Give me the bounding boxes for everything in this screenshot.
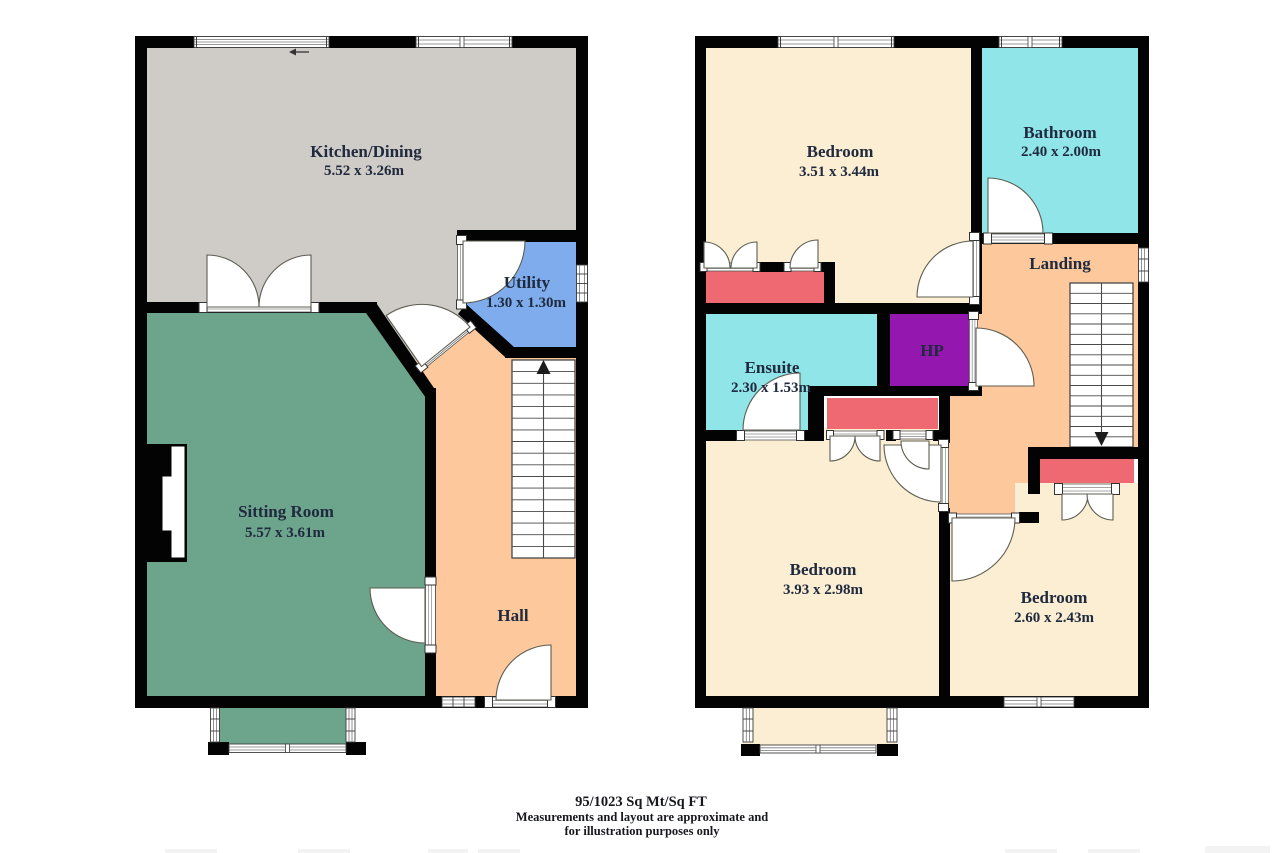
svg-text:Kitchen/Dining: Kitchen/Dining [310,142,422,161]
svg-text:2.60 x 2.43m: 2.60 x 2.43m [1014,610,1095,626]
svg-text:Sitting Room: Sitting Room [238,502,334,521]
svg-text:95/1023 Sq Mt/Sq FT: 95/1023 Sq Mt/Sq FT [575,794,707,810]
svg-text:5.52 x 3.26m: 5.52 x 3.26m [324,163,405,179]
svg-text:Bathroom: Bathroom [1023,123,1096,142]
svg-text:Bedroom: Bedroom [1021,588,1088,607]
svg-text:3.51 x 3.44m: 3.51 x 3.44m [799,164,880,180]
svg-text:Measurements and layout are ap: Measurements and layout are approximate … [516,810,768,824]
svg-text:Landing: Landing [1029,254,1091,273]
svg-text:Bedroom: Bedroom [790,560,857,579]
svg-text:3.93 x 2.98m: 3.93 x 2.98m [783,582,864,598]
svg-text:2.30 x 1.53m: 2.30 x 1.53m [731,380,812,396]
svg-text:Bedroom: Bedroom [807,142,874,161]
svg-text:2.40 x 2.00m: 2.40 x 2.00m [1021,144,1102,160]
svg-text:1.30 x 1.30m: 1.30 x 1.30m [486,295,567,311]
svg-text:5.57 x 3.61m: 5.57 x 3.61m [245,525,326,541]
svg-text:HP: HP [920,341,944,360]
svg-text:Ensuite: Ensuite [745,358,800,377]
svg-text:Utility: Utility [504,273,551,292]
svg-text:Hall: Hall [497,606,528,625]
svg-text:for illustration purposes only: for illustration purposes only [565,824,721,838]
